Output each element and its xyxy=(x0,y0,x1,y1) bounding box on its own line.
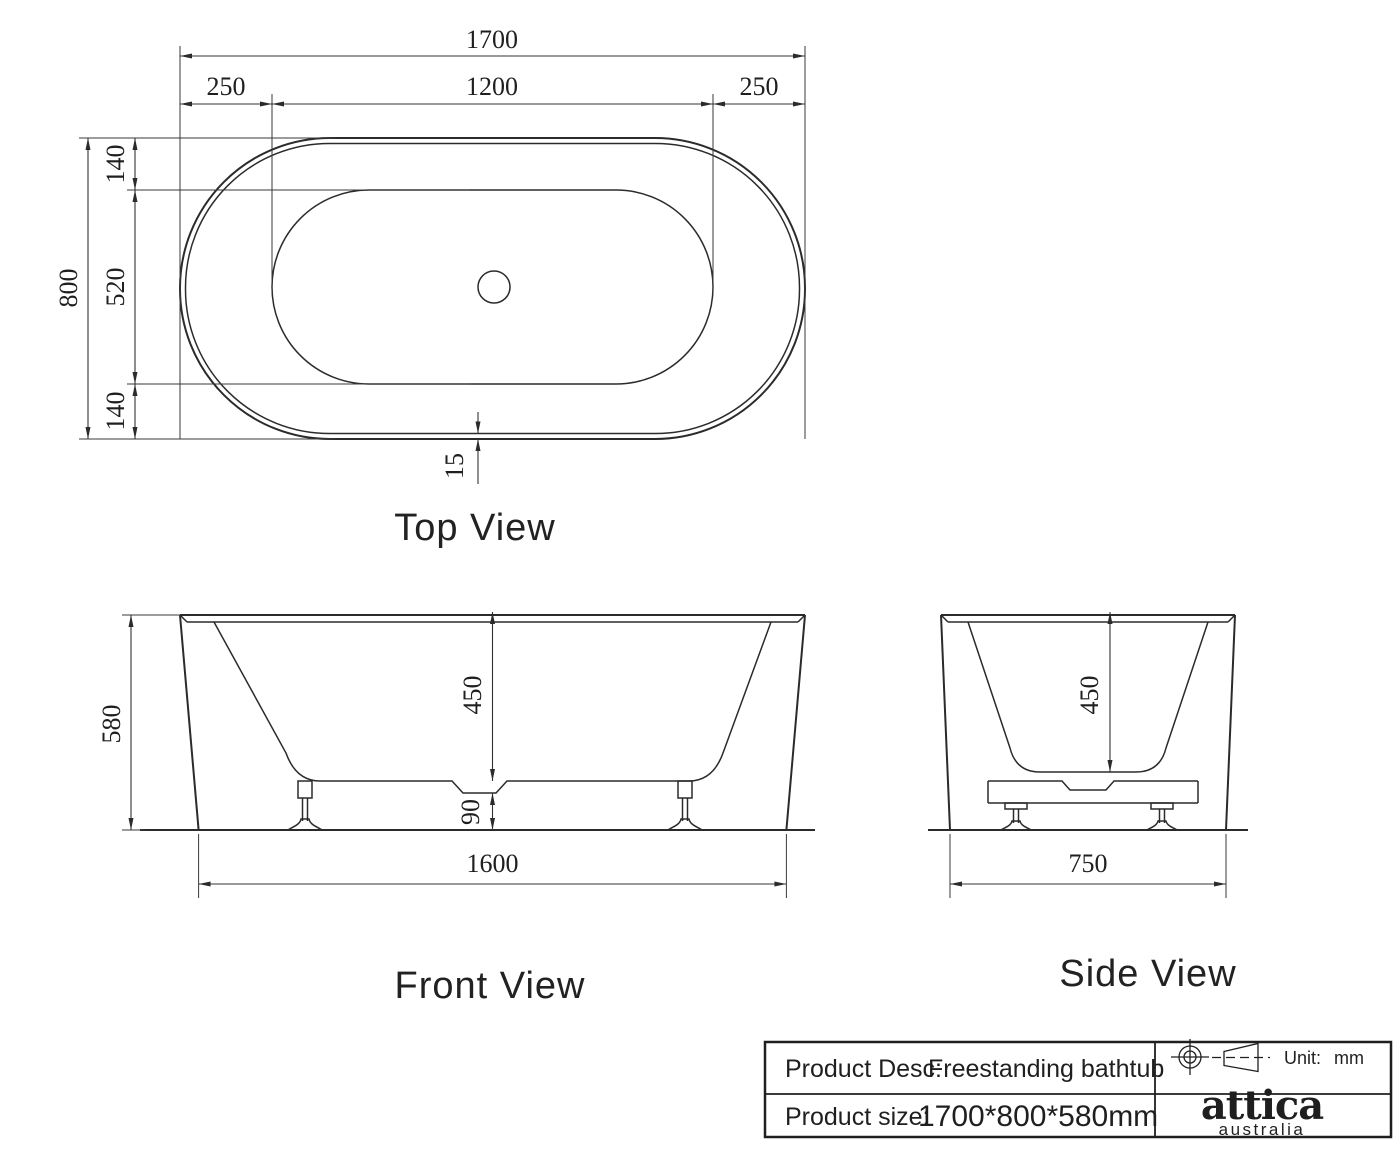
drawing-sheet: 1700 250 1200 250 800 140 520 140 15 Top… xyxy=(0,0,1400,1164)
dim-overall-length: 1700 xyxy=(466,25,518,54)
dim-base-width: 750 xyxy=(1069,849,1108,878)
product-size-label: Product size: xyxy=(785,1103,930,1131)
side-view-label: Side View xyxy=(1059,953,1236,995)
dim-base-clearance: 90 xyxy=(456,799,485,825)
product-desc-label: Product Desc: xyxy=(785,1055,942,1083)
top-view-label: Top View xyxy=(394,507,556,549)
foot-left xyxy=(1001,803,1031,830)
dim-base-length: 1600 xyxy=(467,849,519,878)
dim-inner-depth-side: 450 xyxy=(1075,676,1104,715)
dim-overall-width: 800 xyxy=(54,269,83,308)
dim-basin-length: 1200 xyxy=(466,72,518,101)
technical-drawing: 1700 250 1200 250 800 140 520 140 15 Top… xyxy=(0,0,1400,1164)
tub-outer-rim xyxy=(180,138,805,439)
first-angle-projection-target-icon xyxy=(1171,1039,1209,1075)
tub-basin xyxy=(272,190,713,384)
foot-left xyxy=(288,781,322,830)
title-block: Product Desc: Freestanding bathtub Produ… xyxy=(765,1039,1391,1139)
front-view-drawing: 450 90 580 1600 Front View xyxy=(97,612,815,1007)
dim-left-offset: 250 xyxy=(207,72,246,101)
side-view-drawing: 450 750 Side View xyxy=(928,612,1248,995)
base-plinth xyxy=(988,781,1198,803)
dim-inner-depth-front: 450 xyxy=(458,676,487,715)
dim-wall-thickness: 15 xyxy=(440,453,469,479)
top-view-drawing: 1700 250 1200 250 800 140 520 140 15 Top… xyxy=(54,25,805,549)
dim-top-offset: 140 xyxy=(101,145,130,184)
first-angle-projection-cone-icon xyxy=(1212,1044,1270,1072)
unit-label: Unit: xyxy=(1284,1048,1321,1068)
drain-hole xyxy=(478,271,510,303)
dim-right-offset: 250 xyxy=(740,72,779,101)
product-desc-value: Freestanding bathtub xyxy=(928,1055,1164,1083)
foot-right xyxy=(668,781,702,830)
unit-value: mm xyxy=(1334,1048,1364,1068)
product-size-value: 1700*800*580mm xyxy=(918,1100,1158,1133)
dim-bottom-offset: 140 xyxy=(101,392,130,431)
dim-overall-height: 580 xyxy=(97,705,126,744)
front-view-label: Front View xyxy=(395,965,586,1007)
brand-logo-sub: australia xyxy=(1219,1120,1306,1139)
foot-right xyxy=(1147,803,1177,830)
dim-basin-width: 520 xyxy=(101,268,130,307)
tub-inner-rim xyxy=(186,144,800,434)
